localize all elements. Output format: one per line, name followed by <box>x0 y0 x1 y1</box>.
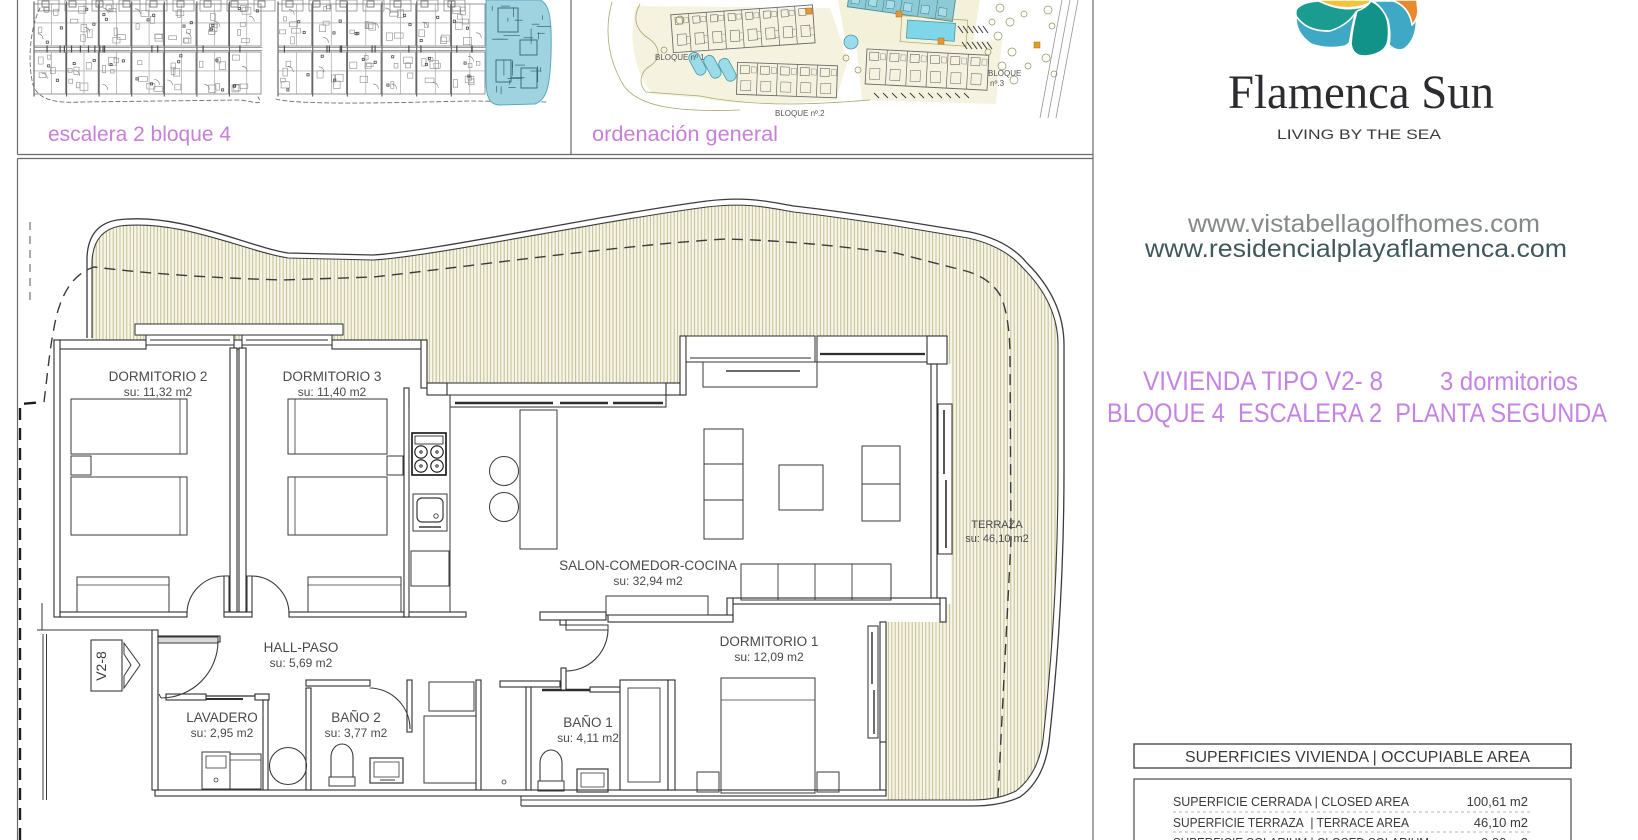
svg-text:su: 32,94 m2: su: 32,94 m2 <box>613 574 683 588</box>
svg-text:VIVIENDA TIPO V2- 8: VIVIENDA TIPO V2- 8 <box>1143 366 1383 396</box>
svg-text:su: 11,40 m2: su: 11,40 m2 <box>298 385 367 399</box>
svg-text:nº.3: nº.3 <box>990 79 1005 88</box>
svg-text:su: 11,32 m2: su: 11,32 m2 <box>124 385 193 399</box>
svg-text:BLOQUE nº 1: BLOQUE nº 1 <box>655 53 705 62</box>
svg-text:su: 3,77 m2: su: 3,77 m2 <box>325 726 388 740</box>
svg-text:BLOQUE 4 ESCALERA 2 PLANTA S: BLOQUE 4 ESCALERA 2 PLANTA SEGUNDA <box>1107 398 1607 428</box>
svg-text:SUPERFICIE CERRADA | CLOSED AR: SUPERFICIE CERRADA | CLOSED AREA <box>1173 794 1409 809</box>
svg-text:BAÑO 2: BAÑO 2 <box>331 710 381 725</box>
svg-text:BLOQUE nº.2: BLOQUE nº.2 <box>775 109 825 118</box>
svg-text:su: 2,95 m2: su: 2,95 m2 <box>191 726 254 740</box>
svg-text:LIVING BY THE SEA: LIVING BY THE SEA <box>1277 127 1441 142</box>
svg-text:BLOQUE: BLOQUE <box>988 69 1021 78</box>
svg-text:V2-8: V2-8 <box>93 651 109 681</box>
svg-text:su: 4,11 m2: su: 4,11 m2 <box>557 731 619 745</box>
svg-text:su: 5,69 m2: su: 5,69 m2 <box>270 656 333 670</box>
svg-text:0,00 m2: 0,00 m2 <box>1481 835 1528 840</box>
svg-text:escalera 2 bloque 4: escalera 2 bloque 4 <box>48 122 231 146</box>
svg-text:SALON-COMEDOR-COCINA: SALON-COMEDOR-COCINA <box>559 558 737 573</box>
svg-text:ordenación general: ordenación general <box>592 122 778 146</box>
svg-text:SUPERFICIE SOLARIUM | CLOSED S: SUPERFICIE SOLARIUM | CLOSED SOLARIUM <box>1173 835 1429 840</box>
svg-text:3 dormitorios: 3 dormitorios <box>1440 366 1578 396</box>
svg-text:www.vistabellagolfhomes.com: www.vistabellagolfhomes.com <box>1187 210 1540 238</box>
svg-text:100,61 m2: 100,61 m2 <box>1467 794 1528 809</box>
svg-text:www.residencialplayaflamenca.c: www.residencialplayaflamenca.com <box>1144 235 1567 263</box>
svg-text:DORMITORIO 3: DORMITORIO 3 <box>283 369 382 384</box>
svg-text:DORMITORIO 1: DORMITORIO 1 <box>720 634 819 649</box>
svg-text:TERRAZA: TERRAZA <box>971 519 1023 531</box>
svg-text:SUPERFICIES VIVIENDA | OCCUPIA: SUPERFICIES VIVIENDA | OCCUPIABLE AREA <box>1185 749 1531 766</box>
svg-text:Flamenca Sun: Flamenca Sun <box>1228 66 1494 119</box>
svg-text:su: 12,09 m2: su: 12,09 m2 <box>734 650 804 664</box>
svg-text:LAVADERO: LAVADERO <box>186 710 258 725</box>
svg-text:su: 46,10 m2: su: 46,10 m2 <box>965 533 1029 545</box>
svg-text:HALL-PASO: HALL-PASO <box>264 640 339 655</box>
svg-text:SUPERFICIE TERRAZA | TERRACE: SUPERFICIE TERRAZA | TERRACE AREA <box>1173 815 1409 830</box>
svg-text:BAÑO 1: BAÑO 1 <box>563 715 613 730</box>
svg-text:46,10 m2: 46,10 m2 <box>1474 815 1528 830</box>
svg-text:DORMITORIO 2: DORMITORIO 2 <box>109 369 208 384</box>
